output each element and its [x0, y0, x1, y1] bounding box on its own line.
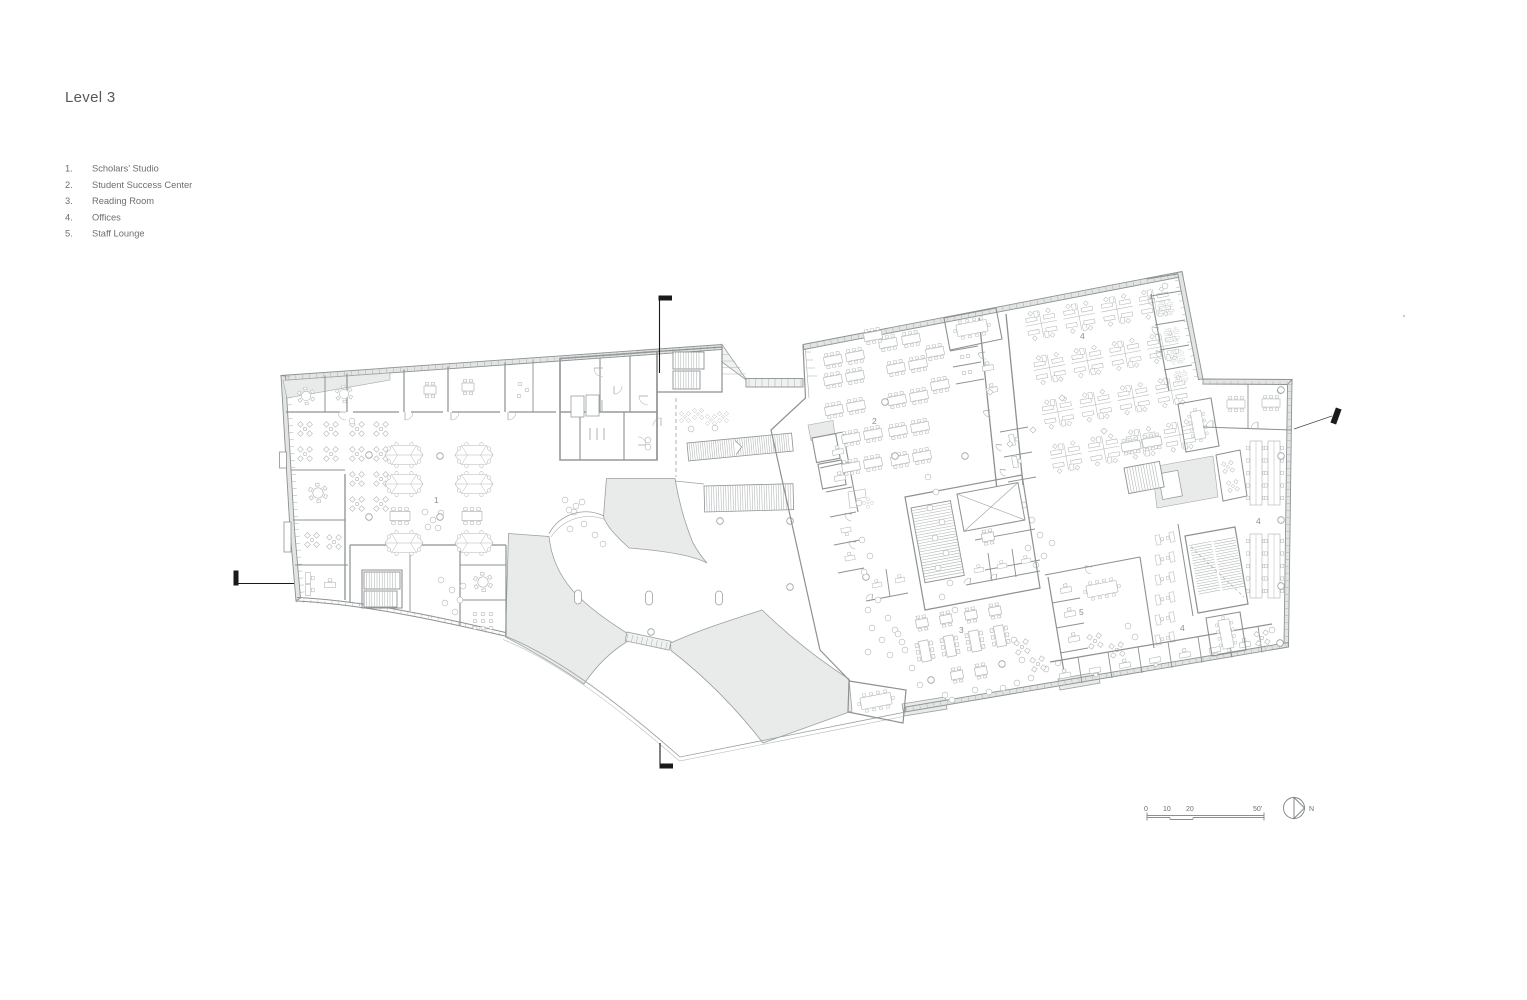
- svg-text:1.: 1.: [65, 164, 73, 174]
- svg-text:5: 5: [1079, 607, 1084, 617]
- svg-text:3.: 3.: [65, 196, 73, 206]
- svg-text:4: 4: [1256, 516, 1261, 526]
- svg-text:4.: 4.: [65, 212, 73, 222]
- svg-text:5.: 5.: [65, 229, 73, 239]
- svg-text:Reading Room: Reading Room: [92, 196, 154, 206]
- svg-text:Staff Lounge: Staff Lounge: [92, 229, 145, 239]
- svg-text:3: 3: [959, 625, 964, 635]
- svg-text:Student Success Center: Student Success Center: [92, 180, 192, 190]
- svg-text:N: N: [1309, 806, 1314, 813]
- svg-text:0: 0: [1144, 806, 1148, 813]
- svg-text:50’: 50’: [1253, 806, 1263, 813]
- svg-text:4: 4: [1180, 623, 1185, 633]
- svg-text:20: 20: [1186, 806, 1194, 813]
- svg-text:2: 2: [872, 416, 877, 426]
- svg-text:10: 10: [1163, 806, 1171, 813]
- svg-text:Level 3: Level 3: [65, 89, 115, 106]
- svg-text:2.: 2.: [65, 180, 73, 190]
- svg-text:1: 1: [434, 495, 439, 505]
- svg-text:Scholars’ Studio: Scholars’ Studio: [92, 164, 159, 174]
- svg-text:Offices: Offices: [92, 212, 121, 222]
- svg-text:4: 4: [1080, 331, 1085, 341]
